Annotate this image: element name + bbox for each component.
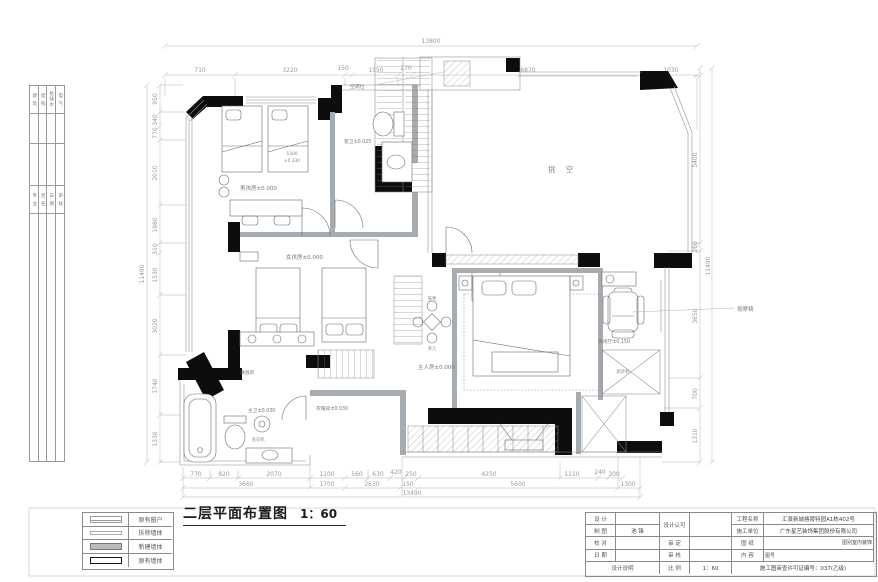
dimensions-bottom: 770 820 2070 1100 560 630 420 250 4250 1… <box>180 457 643 500</box>
tb-contractor-label: 施工单位 <box>732 525 764 537</box>
toilet <box>225 425 245 449</box>
nightstand <box>459 276 472 290</box>
dim-label: 770 <box>152 127 159 139</box>
tb-check-label: 校 对 <box>586 537 616 549</box>
dim-label: 3020 <box>152 318 159 333</box>
tb-content-label: 内 容 <box>732 550 764 562</box>
toilet <box>373 112 393 136</box>
door-void <box>446 227 472 253</box>
dim-label: 950 <box>152 93 159 105</box>
ac-unit <box>444 61 470 86</box>
dim-label: 2010 <box>152 165 159 180</box>
signoff-cell: 给排水 <box>48 91 54 108</box>
label-cloakroom: 衣帽间±0.030 <box>316 405 348 412</box>
dim-label: 300 <box>608 471 620 478</box>
dimensions-left: 11490 950 340 770 2010 1980 310 1530 302… <box>139 82 186 465</box>
dim-label: 340 <box>152 114 159 126</box>
stool <box>219 175 229 185</box>
tb-approve-value <box>690 513 732 537</box>
dim-label: 260 <box>692 241 699 253</box>
desk <box>230 200 302 216</box>
dim-label: 5600 <box>510 481 525 488</box>
door-master-bath <box>282 396 306 420</box>
dim-label: 820 <box>218 471 230 478</box>
dim-label: 420 <box>390 469 402 476</box>
tb-approve-label: 设计认可 <box>660 513 690 537</box>
tb-project-label: 工程名称 <box>732 513 764 525</box>
dim-label: 1700 <box>319 481 334 488</box>
dresser <box>240 332 314 346</box>
furniture-girl-room <box>240 252 422 378</box>
legend-label: 原有墙体 <box>129 554 172 568</box>
void-right-wall <box>670 86 692 253</box>
dim-label: 560 <box>351 471 363 478</box>
label-treadmill: 跑步机 <box>617 368 631 375</box>
legend-swatch-new-wall <box>90 543 122 550</box>
double-bed <box>473 276 570 376</box>
furniture-boy-room <box>219 106 308 225</box>
label-master-bath: 主卫±0.030 <box>248 407 275 414</box>
label-washer: 洗衣机 <box>252 436 266 443</box>
legend-label: 拆除墙体 <box>129 527 172 541</box>
leader-line <box>632 308 735 312</box>
tb-contractor-value: 广东星艺装饰集团股份有限公司 <box>764 525 874 537</box>
floor-plan-sheet: { "sheet": { "strip_top": ["建 筑", "结 构",… <box>0 0 878 582</box>
furniture-master-bath <box>184 394 292 463</box>
tb-design-value <box>616 513 660 525</box>
tb-date-label: 日 期 <box>586 550 616 562</box>
chair <box>242 216 258 225</box>
tb-draft-label: 制 图 <box>586 525 616 537</box>
signoff-cell: 电 气 <box>57 93 63 106</box>
sheet-signoff-strip: 建 筑 结 构 给排水 电 气 专 业 签 名 日 期 审 核 <box>29 85 65 462</box>
bed <box>256 268 300 342</box>
dim-label: 250 <box>405 471 417 478</box>
legend-label: 新建墙体 <box>129 540 172 554</box>
signoff-cell: 建 筑 <box>31 93 37 106</box>
dim-label: 4250 <box>481 471 496 478</box>
window-top-boy-room <box>246 97 316 103</box>
signoff-cell: 审 核 <box>57 193 63 206</box>
dim-label: 150 <box>402 481 414 488</box>
dim-label: 1300 <box>620 481 635 488</box>
void-top-wall <box>518 72 642 76</box>
dim-label: 630 <box>372 471 384 478</box>
title-block: 设 计 设计认可 工程名称 汇景新城格陵特园A1栋402号 制 图 池 锋 施工… <box>585 512 877 577</box>
bench <box>240 252 258 261</box>
label-boy-room: 男孩房±0.000 <box>240 184 277 192</box>
legend: 原有窗户 拆除墙体 新建墙体 原有墙体 <box>82 512 174 570</box>
window-right <box>661 267 669 412</box>
tb-category-label: 图别 <box>842 539 852 546</box>
label-bath-top: 客卫±0.025 <box>344 138 371 145</box>
dim-left-total: 11490 <box>139 264 146 283</box>
dim-label: 1310 <box>692 428 699 443</box>
tb-date-value <box>616 550 660 562</box>
floor-plan-canvas: 13800 710 3220 150 1550 270 6870 1030 11… <box>0 0 878 582</box>
dim-bottom-total: 13490 <box>402 490 421 497</box>
dim-label: 710 <box>194 67 206 74</box>
stairs-down <box>318 350 374 378</box>
door-girl-room <box>350 240 378 268</box>
dim-label: 240 <box>594 469 606 476</box>
chair <box>274 216 290 225</box>
single-bed <box>222 106 262 172</box>
label-shower: 淋浴房 <box>240 369 255 376</box>
stool <box>427 301 437 311</box>
dim-label: 3220 <box>282 67 297 74</box>
label-massage-chair: 按摩椅 <box>737 305 754 313</box>
tb-check-value <box>616 537 660 549</box>
tb-sheet-no-label: 图号 <box>765 552 775 559</box>
dim-label: 310 <box>152 243 159 255</box>
legend-label: 原有窗户 <box>129 513 172 527</box>
bay-window-left <box>186 118 192 352</box>
tb-audit-label: 审 核 <box>660 550 690 562</box>
dim-label: 770 <box>190 471 202 478</box>
drawing-scale: 1：60 <box>300 505 337 522</box>
tb-scale-label: 比 例 <box>660 562 690 574</box>
dim-label: 3650 <box>692 308 699 323</box>
label-tea-table: 茶几 <box>428 345 437 352</box>
signoff-cell: 专 业 <box>31 193 37 206</box>
label-leisure: 休闲厅±0.150 <box>598 338 630 345</box>
dim-top-total: 13800 <box>421 38 440 45</box>
dim-label: 1110 <box>564 471 579 478</box>
dim-label: 1980 <box>152 217 159 232</box>
legend-swatch-window <box>90 516 122 523</box>
tea-table <box>424 314 441 331</box>
dim-label: 2630 <box>364 481 379 488</box>
dim-right-total: 11490 <box>705 256 712 275</box>
cabinet <box>602 272 636 286</box>
tb-notes-label: 设计说明 <box>586 562 660 574</box>
tb-draft-value: 池 锋 <box>616 525 660 537</box>
label-stool: 鼓凳 <box>428 295 437 302</box>
door-bath-top <box>335 200 363 228</box>
legend-swatch-demolish-wall <box>90 531 122 535</box>
signoff-cell: 日 期 <box>48 193 54 206</box>
stool <box>219 187 229 197</box>
tb-review-label: 审 定 <box>660 537 690 549</box>
tb-scale-value: 1：60 <box>690 562 732 574</box>
label-ac-platform: 空调位 <box>350 83 365 90</box>
dim-label: 1330 <box>152 431 159 446</box>
door-boy-room <box>302 208 330 236</box>
tb-sheet-label: 图 纸 <box>732 537 764 549</box>
tb-category-value: 室内装饰 <box>852 539 872 546</box>
dim-label: 1740 <box>152 378 159 393</box>
dim-label: 1530 <box>152 267 159 282</box>
dim-label: 150 <box>337 65 349 72</box>
drawing-title-text: 二层平面布置图 <box>183 503 288 523</box>
drawing-title: 二层平面布置图 1：60 <box>183 503 346 526</box>
tb-audit-value <box>690 550 732 562</box>
dim-label: 6870 <box>520 67 535 74</box>
dim-label: 3660 <box>238 481 253 488</box>
label-void: 挑 空 <box>548 164 577 174</box>
dim-label: 1100 <box>319 471 334 478</box>
dim-label: 2070 <box>266 471 281 478</box>
tb-design-label: 设 计 <box>586 513 616 525</box>
label-master-room: 主人房±0.000 <box>418 363 455 371</box>
label-bed-dim: 1300 <box>287 151 298 157</box>
shelf <box>394 276 422 344</box>
tb-permit: 施工图审查许可证编号：037(乙级) <box>732 562 874 574</box>
stool <box>427 333 437 343</box>
legend-swatch-existing-wall <box>90 557 122 564</box>
dim-label: 5400 <box>692 152 699 167</box>
signoff-cell: 结 构 <box>39 93 45 106</box>
bed <box>322 268 366 342</box>
tb-review-value <box>690 537 732 549</box>
dim-label: 700 <box>692 388 699 400</box>
vanity <box>382 142 412 182</box>
washing-machine <box>254 416 270 432</box>
label-girl-room: 女孩房±0.000 <box>286 253 323 261</box>
tb-project-value: 汇景新城格陵特园A1栋402号 <box>764 513 874 525</box>
glass-partition-void <box>446 255 578 264</box>
signoff-cell: 签 名 <box>39 193 45 206</box>
furniture-leisure <box>602 272 735 394</box>
stool <box>441 317 451 327</box>
label-bed-level: ±0.330 <box>284 158 300 164</box>
nightstand <box>570 276 583 290</box>
